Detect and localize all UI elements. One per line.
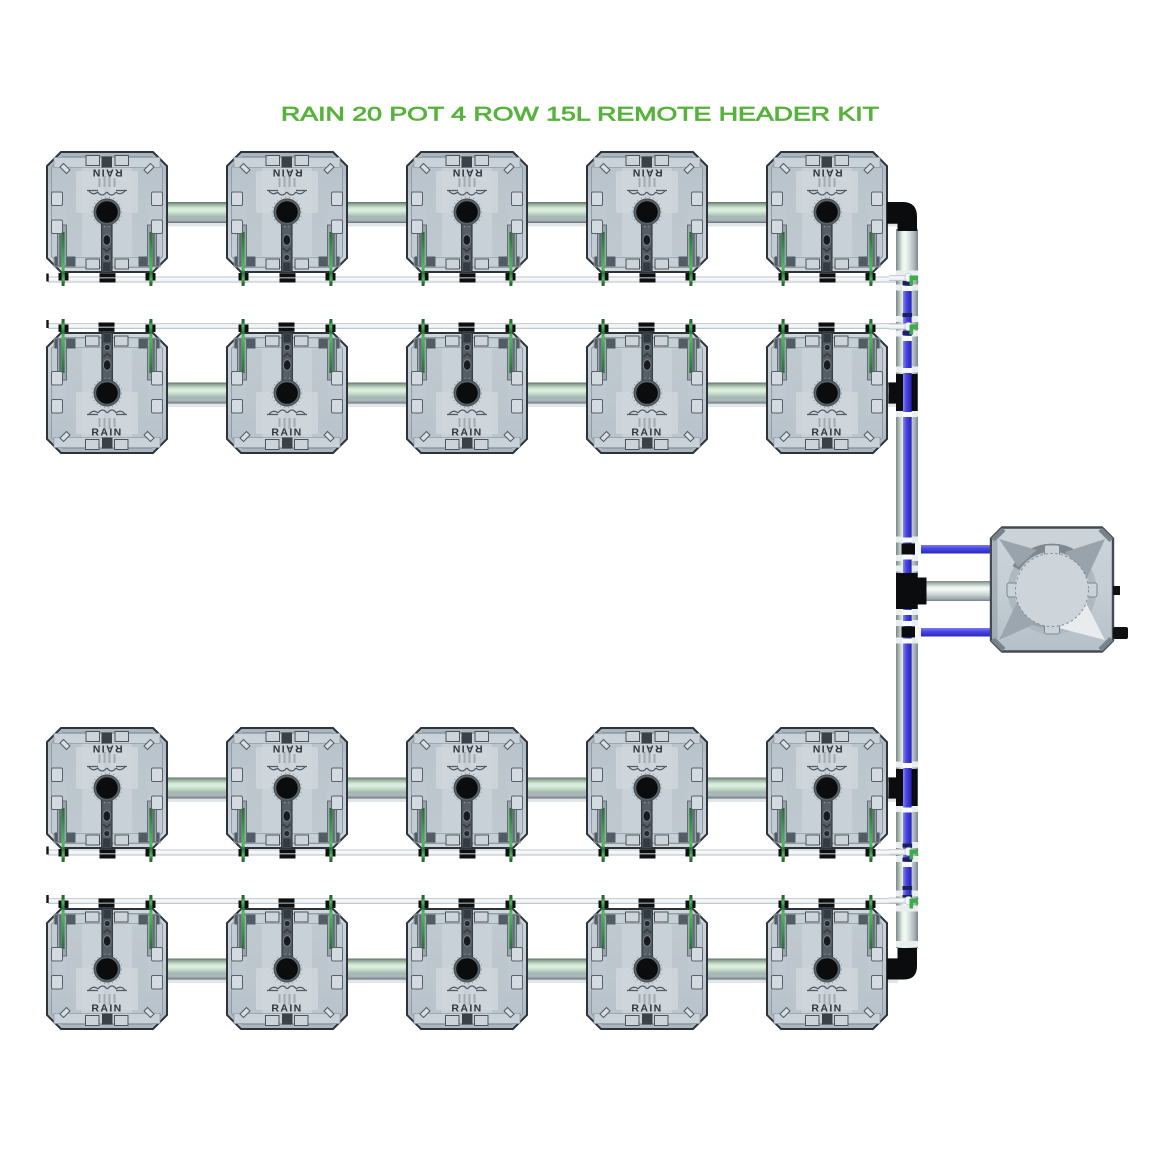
- svg-text:RAIN 20 POT 4 ROW 15L REMOTE H: RAIN 20 POT 4 ROW 15L REMOTE HEADER KIT: [281, 104, 879, 126]
